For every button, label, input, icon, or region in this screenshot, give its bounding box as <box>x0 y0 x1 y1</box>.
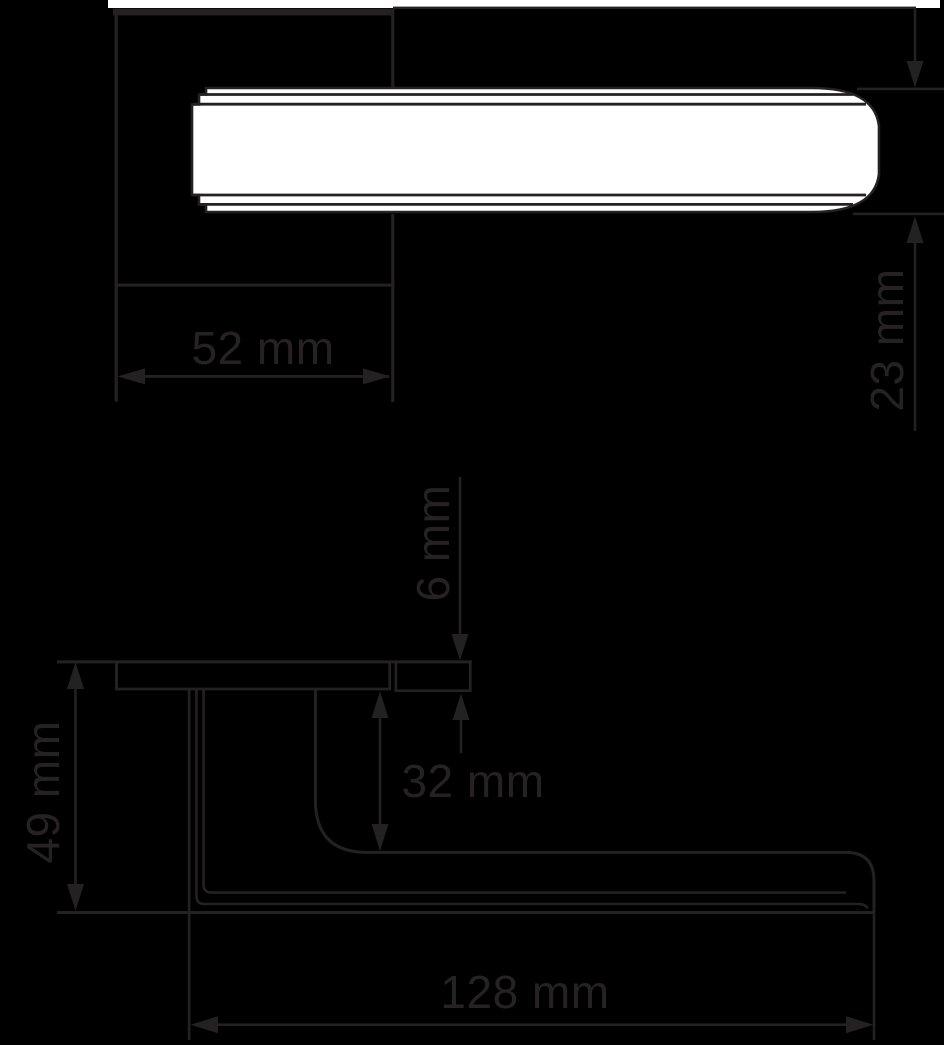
dimension-128mm: 128 mm <box>191 966 874 1033</box>
arrow-down-icon <box>907 61 924 87</box>
side-view: 6 mm 49 mm 32 mm 128 mm <box>17 477 875 1040</box>
box-left-line <box>115 9 118 402</box>
top-view: 52 mm 23 mm <box>108 0 944 431</box>
dimension-line-upper <box>914 9 917 62</box>
arrow-up-icon <box>67 662 84 689</box>
dimension-label: 128 mm <box>440 966 609 1018</box>
dimension-line <box>214 1023 848 1026</box>
lever-bottom-line <box>57 911 875 914</box>
dimension-line <box>123 375 389 378</box>
top-extension-line <box>393 7 916 9</box>
arrow-down-icon <box>452 634 469 660</box>
dimension-line-lower <box>460 720 463 753</box>
arrow-left-icon <box>118 368 146 384</box>
arrow-right-icon <box>363 368 391 384</box>
rosette-left-edge <box>115 663 118 689</box>
rosette-bottom-line-right <box>395 689 472 692</box>
dimension-line-upper <box>459 477 462 634</box>
dimension-52mm: 52 mm <box>118 322 391 384</box>
rosette-bottom-line <box>115 688 391 691</box>
extension-line-top <box>857 88 944 91</box>
dimension-label: 6 mm <box>407 485 459 602</box>
rosette-top-line <box>57 660 472 663</box>
dimension-23mm: 23 mm <box>853 9 944 431</box>
dimension-label: 49 mm <box>17 720 69 863</box>
arrow-up-icon <box>907 216 924 243</box>
arrow-down-icon <box>67 884 84 911</box>
dimension-label: 52 mm <box>191 322 334 374</box>
extension-line-bottom <box>853 213 944 216</box>
arrow-right-icon <box>846 1016 874 1033</box>
dimension-line <box>379 716 382 828</box>
arrow-down-icon <box>372 824 389 851</box>
dimension-49mm: 49 mm <box>17 662 84 911</box>
dimension-label: 32 mm <box>401 755 544 807</box>
box-bottom-line <box>115 284 395 287</box>
box-right-line-upper <box>391 9 394 88</box>
arrow-up-icon <box>372 691 389 718</box>
dimension-drawing-canvas: 52 mm 23 mm 6 mm <box>0 0 944 1045</box>
dimension-line <box>74 688 77 884</box>
rosette-divider-1 <box>388 663 391 688</box>
box-top-line <box>113 9 394 16</box>
lever-top-profile <box>315 689 874 912</box>
handle-dimension-drawing: 52 mm 23 mm 6 mm <box>0 0 944 1045</box>
arrow-up-icon <box>453 694 470 720</box>
neck-outer-edge-extension-line <box>188 689 191 1040</box>
rosette-divider-2 <box>395 663 398 691</box>
dimension-label: 23 mm <box>861 268 913 411</box>
rosette-right-edge <box>469 662 472 692</box>
dimension-line-lower <box>914 243 917 431</box>
lever-end-extension-line <box>873 881 876 1040</box>
handle-bar-top-view <box>192 88 879 212</box>
arrow-left-icon <box>191 1016 219 1033</box>
dimension-6mm: 6 mm <box>407 477 470 753</box>
box-right-line-lower <box>391 214 394 402</box>
